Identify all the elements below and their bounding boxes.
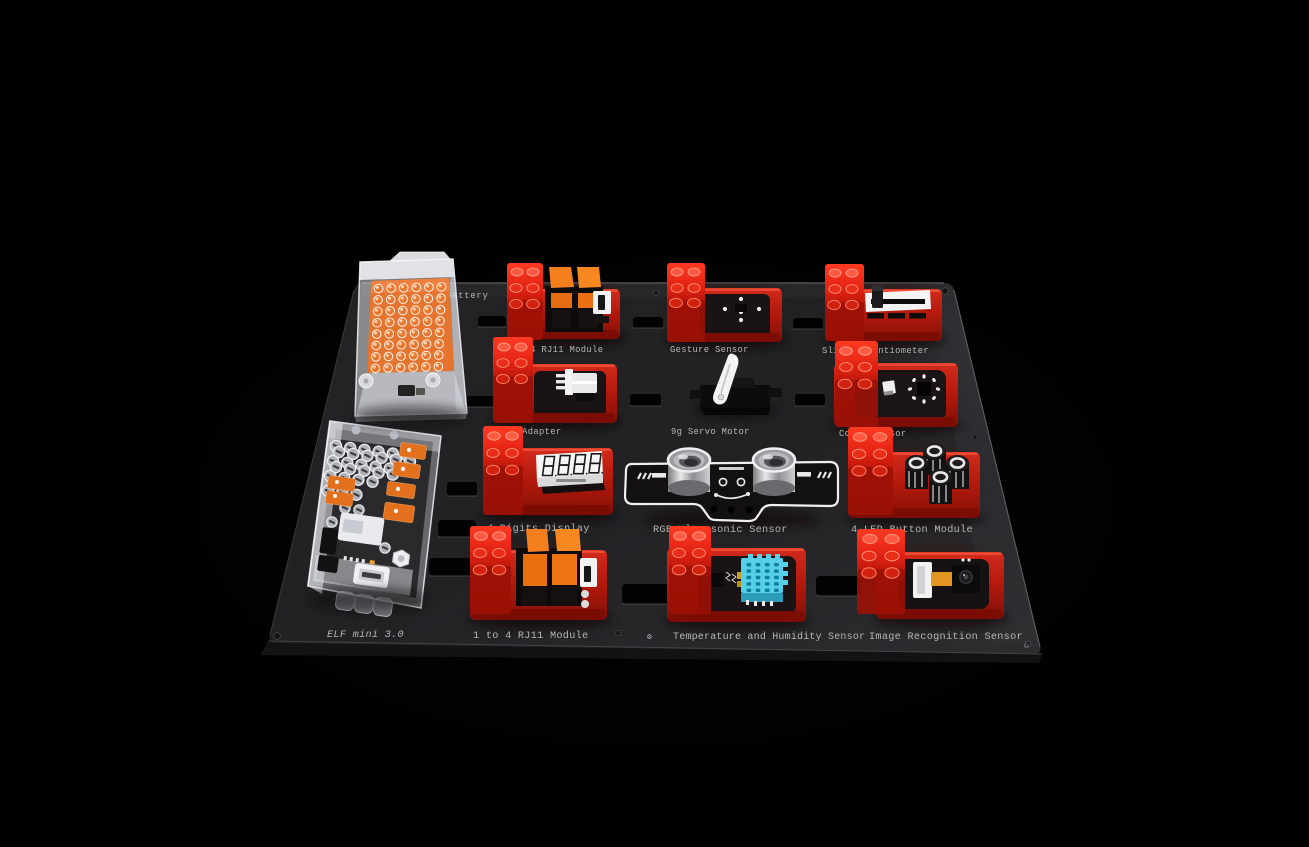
svg-text:⚙: ⚙ xyxy=(647,633,652,642)
svg-text:1 to 4 RJ11 Module: 1 to 4 RJ11 Module xyxy=(473,630,588,642)
svg-text:9g Servo Motor: 9g Servo Motor xyxy=(671,427,750,437)
svg-text:ELF mini 3.0: ELF mini 3.0 xyxy=(327,629,404,641)
svg-text:Image Recognition Sensor: Image Recognition Sensor xyxy=(869,631,1023,643)
svg-text:Temperature and Humidity Senso: Temperature and Humidity Sensor xyxy=(673,631,865,643)
svg-text:☺: ☺ xyxy=(1024,642,1029,651)
svg-text:Gesture Sensor: Gesture Sensor xyxy=(670,345,749,355)
